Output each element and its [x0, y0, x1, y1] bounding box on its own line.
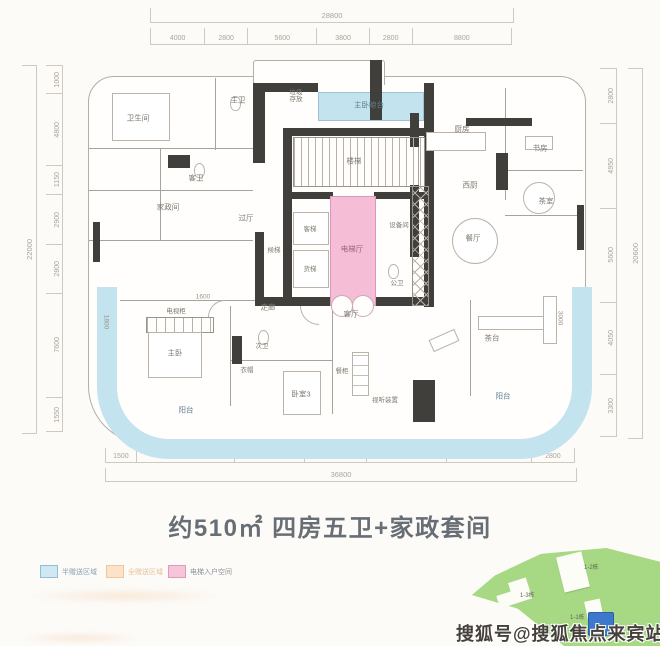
dim-text: 1550: [54, 407, 62, 423]
wall: [255, 232, 264, 306]
right-segment-dimensions: 2800 4950 5600 4050 3300: [600, 68, 617, 437]
dim-text: 4950: [608, 158, 616, 174]
building-label: 1-3栋: [520, 590, 535, 599]
dim-segment: 4000: [150, 28, 204, 44]
print-smudge: [15, 632, 145, 644]
room-label: 楼梯: [347, 156, 362, 167]
balcony-band-right: [452, 287, 592, 459]
room-label: 客厅: [344, 309, 359, 320]
room-label: 公卫: [391, 277, 404, 287]
dim-text: 3800: [335, 35, 351, 44]
partition: [505, 170, 583, 171]
dim-text: 2800: [54, 261, 62, 277]
room-label: 视听装置: [372, 394, 398, 404]
partition: [230, 360, 332, 361]
legend-item-full-gift: 全赠送区域: [106, 565, 163, 578]
wall: [283, 128, 292, 306]
floorplan-page: { "title": "约510㎡ 四房五卫+家政套间", "dims": { …: [0, 0, 660, 646]
dim-segment: 1150: [46, 165, 62, 194]
dim-text: 36800: [331, 470, 352, 481]
wardrobe: [146, 317, 214, 333]
partition: [120, 300, 255, 301]
dim-text: 1000: [54, 72, 62, 88]
tea-counter: [478, 316, 552, 330]
wall: [370, 60, 382, 120]
bottom-total-dimension: 36800: [105, 468, 577, 482]
room-label: 茶台: [485, 333, 500, 344]
building-label: 1-2栋: [584, 562, 599, 571]
inline-dimension: 1800: [103, 315, 110, 329]
left-segment-dimensions: 1000 4800 1150 2900 2800 7600 1550: [46, 65, 63, 432]
dim-text: 1500: [113, 453, 129, 462]
dim-text: 2800: [383, 35, 399, 44]
dim-segment: 4800: [46, 93, 62, 165]
dim-text: 4800: [54, 122, 62, 138]
dim-segment: 2900: [46, 194, 62, 244]
partition: [230, 306, 231, 406]
top-segment-dimensions: 4000 2800 5600 3800 2800 8800: [150, 28, 512, 45]
room-label: 阳台: [179, 405, 194, 416]
tea-counter-side: [543, 296, 557, 344]
room-label: 电梯厅: [341, 244, 364, 255]
dim-text: 7600: [54, 337, 62, 353]
kitchen-island: [426, 132, 486, 151]
wall: [577, 205, 584, 250]
room-label: 候梯: [268, 244, 281, 254]
dim-text: 4050: [608, 330, 616, 346]
partition: [89, 190, 253, 191]
dim-text: 8800: [454, 35, 470, 44]
core-top-protrusion: [253, 60, 385, 85]
partition: [160, 148, 161, 240]
dim-segment: 8800: [412, 28, 512, 44]
dim-segment: 4950: [600, 123, 616, 208]
room-label: 电视柜: [166, 305, 186, 315]
room-label: 垃圾存放: [289, 89, 304, 103]
watermark-text: 搜狐号@搜狐焦点来宾站: [456, 620, 660, 646]
room-label: 设备间: [389, 219, 409, 229]
dim-segment: 2800: [204, 28, 247, 44]
dim-segment: 2800: [369, 28, 412, 44]
room-label: 茶室: [539, 196, 554, 207]
inline-dimension: 1600: [196, 294, 210, 301]
room-label: 衣帽: [241, 364, 254, 374]
dim-text: 5600: [608, 247, 616, 263]
wall: [93, 222, 100, 262]
dim-segment: 4050: [600, 302, 616, 374]
room-label: 西厨: [463, 180, 478, 191]
wall: [168, 155, 190, 168]
room-label: 卫生间: [127, 113, 150, 124]
wall: [253, 83, 265, 163]
partition: [505, 215, 583, 216]
print-smudge: [20, 588, 230, 604]
legend-item-elevator-entry: 电梯入户空间: [168, 565, 232, 578]
dim-text: 3300: [608, 398, 616, 414]
dim-text: 2800: [218, 35, 234, 44]
dim-text: 2900: [54, 212, 62, 228]
partition: [332, 306, 333, 414]
dim-text: 5600: [274, 35, 290, 44]
room-label: 家政间: [157, 202, 180, 213]
room-label: 客梯: [304, 223, 317, 233]
dim-segment: 5600: [247, 28, 316, 44]
wall: [466, 118, 532, 126]
dim-segment: 1550: [46, 397, 62, 432]
legend-swatch-pink: [168, 565, 186, 578]
partition: [215, 78, 216, 150]
room-label: 主卧: [168, 348, 183, 359]
wall: [283, 192, 333, 199]
room-label: 次卫: [256, 340, 269, 350]
top-total-dimension: 28800: [150, 8, 514, 23]
wall: [413, 380, 435, 422]
inline-dimension: 3000: [557, 311, 564, 325]
dim-segment: 3800: [316, 28, 368, 44]
dim-segment: 3300: [600, 374, 616, 437]
dim-text: 2800: [608, 88, 616, 104]
room-label: 书房: [533, 143, 548, 154]
av-shelf: [352, 352, 369, 396]
room-label: 货梯: [304, 263, 317, 273]
room-label: 主卫: [231, 95, 246, 106]
dim-segment: 7600: [46, 293, 62, 397]
dim-text: 22000: [25, 239, 34, 260]
room-label: 客卫: [189, 173, 204, 184]
room-label: 厨房: [455, 124, 470, 135]
dim-segment: 1000: [46, 65, 62, 93]
dim-segment: 5600: [600, 208, 616, 302]
room-label: 餐厅: [466, 233, 481, 244]
wall: [496, 153, 508, 190]
legend-swatch-orange: [106, 565, 124, 578]
room-label: 主卧晾台: [354, 100, 384, 111]
page-title: 约510㎡ 四房五卫+家政套间: [0, 508, 660, 543]
partition: [89, 240, 253, 241]
room-label: 过厅: [239, 213, 254, 224]
legend-swatch-blue: [40, 565, 58, 578]
dim-segment: 1500: [105, 448, 136, 462]
dim-text: 1150: [54, 172, 62, 187]
room-label: 卧室3: [291, 389, 310, 400]
dim-text: 2800: [545, 453, 561, 462]
room-label: 餐柜: [336, 365, 349, 375]
dim-text: 20600: [631, 243, 640, 264]
partition: [89, 148, 253, 149]
shaft-column: [412, 186, 429, 306]
dim-text: 4000: [170, 35, 186, 44]
legend-label: 电梯入户空间: [190, 567, 232, 577]
legend-item-half-gift: 半赠送区域: [40, 565, 97, 578]
wall: [253, 83, 318, 92]
left-total-dimension: 22000: [22, 65, 37, 434]
dim-segment: 2800: [600, 68, 616, 123]
room-label: 阳台: [496, 391, 511, 402]
legend-label: 全赠送区域: [128, 567, 163, 577]
dim-segment: 2800: [46, 244, 62, 293]
wall: [232, 336, 242, 364]
legend-label: 半赠送区域: [62, 567, 97, 577]
room-label: 走廊: [261, 302, 276, 313]
dim-text: 28800: [322, 11, 343, 22]
right-total-dimension: 20600: [628, 68, 643, 439]
partition: [470, 300, 471, 396]
